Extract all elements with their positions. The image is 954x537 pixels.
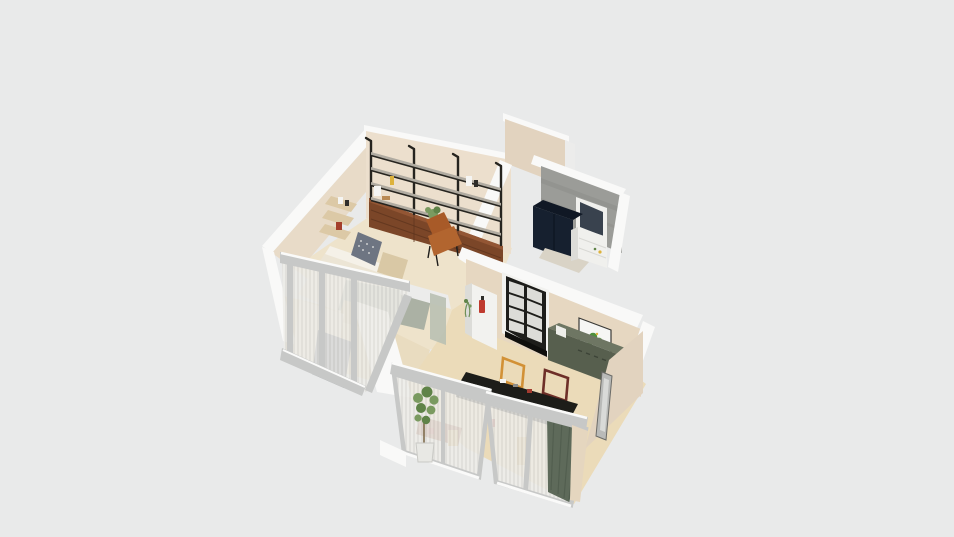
island-gray-item bbox=[513, 384, 518, 387]
plant-foliage bbox=[413, 393, 423, 403]
fire-extinguisher bbox=[479, 300, 485, 313]
floorplan-3d-viewport[interactable] bbox=[0, 0, 954, 537]
plant-foliage bbox=[425, 207, 431, 213]
decor-yellow-vase bbox=[390, 176, 394, 185]
plant-pot bbox=[416, 443, 434, 462]
white-cabinet-side bbox=[571, 227, 578, 261]
shelf-book-dark bbox=[345, 200, 349, 206]
plant-foliage bbox=[422, 416, 430, 424]
cabinet-decor-dot bbox=[598, 250, 601, 253]
bay-mullion bbox=[319, 270, 325, 373]
bay-mullion bbox=[351, 277, 357, 388]
decor-white-jug bbox=[466, 176, 472, 186]
plant-foliage bbox=[427, 406, 436, 415]
shelf-book-red bbox=[336, 222, 342, 230]
sprig-leaf bbox=[464, 299, 468, 303]
print-dot bbox=[596, 333, 598, 335]
island-red-item bbox=[527, 389, 532, 393]
plant-foliage bbox=[416, 403, 426, 413]
plant-foliage bbox=[433, 206, 440, 213]
sprig-leaf bbox=[468, 304, 471, 307]
decor-white-frame bbox=[374, 186, 381, 196]
sage-curtain-sliver bbox=[430, 293, 446, 345]
decor-book-stack bbox=[382, 196, 390, 200]
decor-black-item bbox=[474, 180, 478, 187]
plant-foliage bbox=[429, 395, 438, 404]
plant-foliage bbox=[422, 387, 433, 398]
island-dish bbox=[500, 379, 506, 383]
bay-mullion bbox=[287, 263, 293, 360]
shelf-book-white bbox=[338, 197, 343, 204]
floorplan-stage bbox=[0, 0, 954, 537]
plant-foliage bbox=[414, 414, 421, 421]
cabinet-decor-dot bbox=[594, 248, 597, 251]
left-bay-mullion bbox=[441, 386, 445, 466]
extinguisher-valve bbox=[481, 296, 484, 300]
